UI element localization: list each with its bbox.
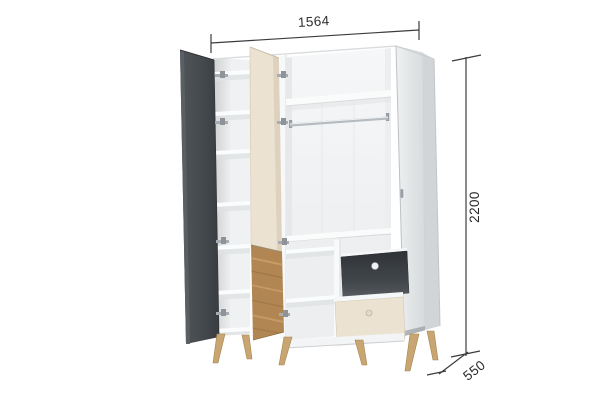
depth-dimension-label: 550: [460, 357, 488, 383]
leg: [427, 331, 438, 360]
width-dim-line: [211, 30, 419, 43]
leg: [242, 335, 252, 359]
drawer-gloss: [341, 251, 409, 299]
leg: [405, 334, 419, 371]
drawer-graphite: [341, 248, 409, 299]
depth-dim-tick: [427, 371, 446, 375]
middle-door-open: [250, 47, 284, 340]
wardrobe-diagram-canvas: 1564 2200 550: [0, 0, 600, 400]
leg: [213, 334, 225, 363]
furniture-dimension-diagram: 1564 2200 550: [0, 0, 600, 400]
height-dimension-label: 2200: [467, 191, 482, 223]
left-door-open: [180, 50, 219, 344]
right-door-handle: [401, 189, 404, 198]
leg: [279, 337, 292, 365]
drawer-knob: [372, 263, 379, 270]
drawer-knob: [366, 310, 372, 316]
width-dimension-label: 1564: [297, 13, 330, 30]
